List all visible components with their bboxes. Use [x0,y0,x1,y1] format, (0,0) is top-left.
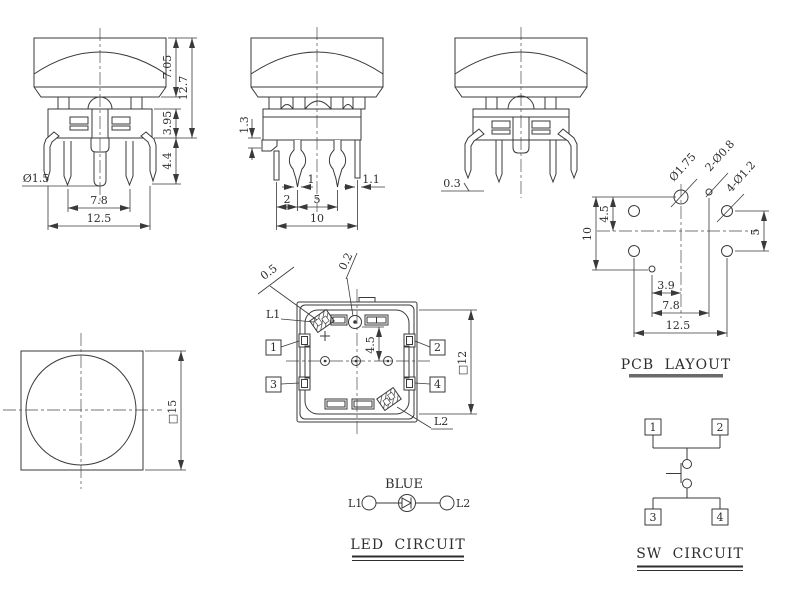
body-foot [262,140,277,151]
pin-hole [629,206,640,217]
locating-pin [274,151,279,180]
dim-total-height: 12.7 [177,76,190,101]
dim-cap-height: 7.05 [161,55,174,80]
pin-number: 2 [434,341,441,354]
dim-body-height: 3.95 [161,111,174,136]
outer-pin [558,129,577,178]
dim-outer-pitch: 12.5 [87,212,112,225]
label-led1: L1 [266,308,280,321]
top-view: □15 [3,333,186,489]
top-notch [359,298,375,303]
contact-dot [683,460,692,469]
title-underline [629,374,723,378]
pin-number: 1 [270,341,277,354]
back-view: 0.3 [441,27,587,198]
sw-circuit: 1 2 3 4 SW CIRCUIT [636,419,744,571]
polarity-cross [320,331,330,341]
inner-pin [64,141,71,185]
terminal-number: 2 [717,421,724,434]
drawing-canvas: 7.05 12.7 3.95 4.4 Ø1.5 7.8 12.5 1.3 1 1… [0,0,800,600]
sw-circuit-title: SW CIRCUIT [636,546,744,562]
label-center-hole: Ø1.75 [667,150,699,184]
locating-pin [355,140,360,178]
dim-led-row-offset: 4.5 [364,336,377,354]
dim-led-offset: 3.9 [657,279,675,292]
pin-number: 4 [434,378,441,391]
dim-pitch-center: 5 [314,193,321,206]
pcb-layout: 4.5 10 5 3.9 7.8 12.5 Ø1.75 2-Ø0.8 4-Ø1.… [581,138,769,378]
terminal-tab [299,377,310,390]
pcb-layout-title: PCB LAYOUT [621,357,732,373]
dim-pad-b: 0.2 [336,251,355,272]
terminal-l1 [362,496,376,510]
led-color-label: BLUE [385,477,423,492]
centerlines [3,333,162,489]
dim-post-width: 1.1 [362,173,380,186]
dim-pad-a: 0.5 [258,262,280,283]
side-view: 1.3 1 1.1 2 5 10 [238,27,385,230]
dim-pin-length: 4.4 [161,152,174,170]
pin-hole [722,246,733,257]
terminal-tab [404,377,415,390]
diode-glyph [399,498,411,509]
dim-pin-span: 12.5 [666,319,691,332]
switch-actuator [666,463,681,483]
inner-pin [496,140,502,182]
centerlines [286,289,430,434]
dim-pitch-left: 2 [284,193,291,206]
dim-inner-pitch: 7.8 [90,194,108,207]
pin-hole [629,246,640,257]
label-led2: L2 [434,415,448,428]
engineering-drawing-sheet: 7.05 12.7 3.95 4.4 Ø1.5 7.8 12.5 1.3 1 1… [0,0,800,600]
pin-number: 3 [270,378,277,391]
front-view: 7.05 12.7 3.95 4.4 Ø1.5 7.8 12.5 [22,28,197,230]
terminal-tab [404,334,415,347]
outer-pin [141,132,156,181]
dim-pitch-overall: 10 [310,212,324,225]
terminal-number: 3 [650,511,657,524]
dim-tip-width: 1 [308,173,315,186]
contact-dot [683,479,692,488]
terminal-number: 4 [717,511,724,524]
bottom-view: 4.5 □12 1 2 3 4 L1 L2 0.5 0.2 [258,251,477,434]
terminal-number: 1 [650,421,657,434]
led-circuit-title: LED CIRCUIT [350,537,465,553]
dim-row-offset: 4.5 [598,205,611,223]
dim-led-span: 7.8 [662,299,680,312]
inner-pin [126,141,133,185]
dim-body-square: □12 [456,351,469,375]
label-led-holes: 2-Ø0.8 [703,138,738,174]
cap-outline [21,351,143,470]
dim-cap-square: □15 [166,400,179,424]
snap-pin [329,140,345,187]
extension-lines [152,38,197,184]
switch-body [263,109,361,140]
terminal-l2 [440,496,454,510]
dim-pin-diameter: Ø1.5 [23,172,50,185]
led-circuit: BLUE L1 L2 LED CIRCUIT [348,477,470,561]
label-l1: L1 [348,497,362,510]
label-pin-holes: 4-Ø1.2 [724,159,759,195]
extension-lines [592,197,769,337]
dim-step: 1.3 [238,116,251,134]
dim-row-span: 10 [581,227,594,241]
led-hole [649,266,655,272]
inner-pin [550,140,556,182]
label-l2: L2 [456,497,470,510]
snap-pin [289,140,305,187]
dim-standoff: 0.3 [443,177,461,190]
terminal-tab [299,334,310,347]
dim-right-span: 5 [749,229,762,236]
outer-pin [465,129,484,178]
